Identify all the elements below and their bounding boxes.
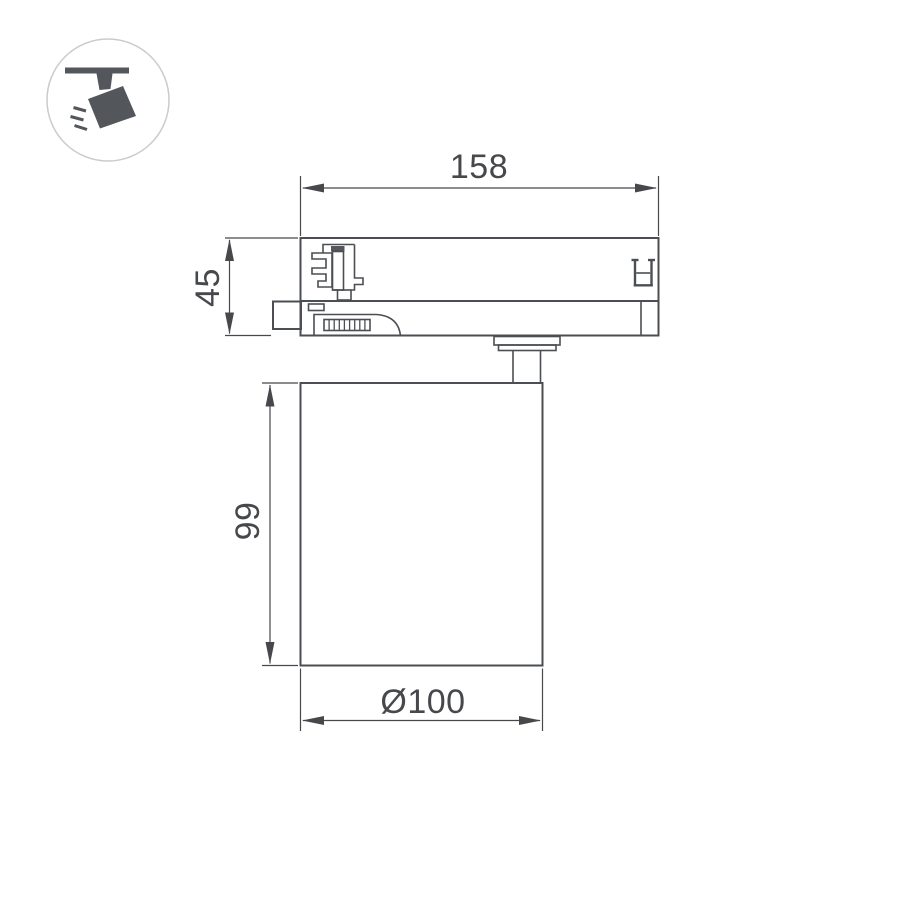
flange-lower: [499, 345, 557, 351]
locking-lever: [314, 315, 401, 336]
dimension-label: 99: [229, 502, 267, 541]
contact-pin-cap: [331, 246, 345, 252]
lever-grip: [324, 320, 370, 331]
contact-foot: [338, 290, 352, 300]
u-clip: [632, 260, 656, 287]
flange-upper: [494, 337, 560, 346]
icon-track-bar: [65, 68, 129, 74]
dimension-label: 45: [189, 268, 227, 307]
arrowhead-top: [225, 239, 234, 261]
dimension-adapter-width: 158: [301, 148, 659, 236]
arrowhead-left: [302, 716, 324, 725]
latch-slot: [309, 304, 325, 311]
dimension-label: 158: [450, 148, 508, 186]
lamp-body: [301, 383, 543, 666]
contact-prongs: [312, 253, 332, 287]
track-spotlight-icon: [47, 39, 169, 161]
dimension-label: Ø100: [380, 683, 465, 721]
arrowhead-left: [302, 184, 324, 193]
dimension-body-diameter: Ø100: [301, 669, 543, 732]
dimension-body-height: 99: [229, 383, 298, 666]
contact-pin: [333, 252, 344, 291]
technical-drawing-svg: 158 45 99 Ø100: [0, 0, 900, 900]
arrowhead-right: [519, 716, 541, 725]
side-latch: [273, 302, 301, 330]
arrowhead-top: [266, 385, 275, 407]
dimension-adapter-height: 45: [189, 238, 298, 336]
track-adapter-drawing: [273, 238, 659, 336]
contact-assembly: [312, 245, 363, 301]
contact-bracket: [351, 245, 363, 291]
arrowhead-right: [635, 184, 657, 193]
swivel-joint-drawing: [494, 337, 560, 383]
arrowhead-bottom: [225, 313, 234, 335]
arrowhead-bottom: [266, 642, 275, 664]
